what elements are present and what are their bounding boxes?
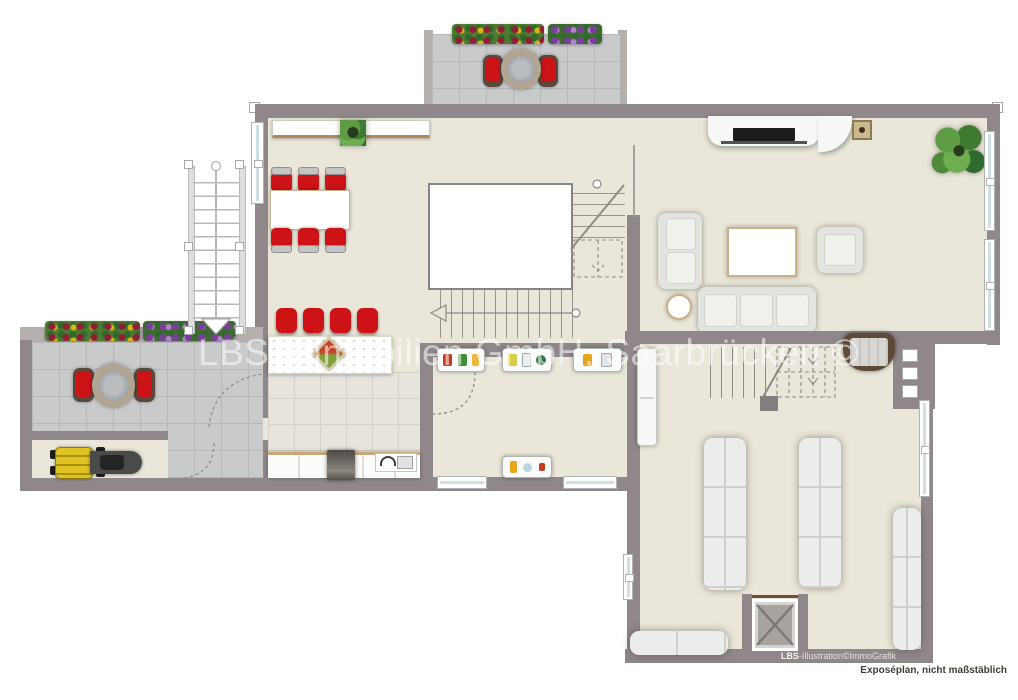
lawn-mower <box>55 447 93 479</box>
wall-unit-knob <box>859 127 865 133</box>
shaft-wall <box>742 594 752 652</box>
stairwell-void <box>428 183 573 290</box>
window <box>251 122 264 204</box>
shaft-wall <box>798 594 808 652</box>
wall-top <box>255 104 1000 118</box>
side-table <box>666 294 692 320</box>
stove <box>327 450 355 480</box>
lounger-bench <box>893 508 921 650</box>
wall-niche <box>902 349 918 362</box>
lounger-bench <box>630 631 728 655</box>
dining-chair <box>271 228 292 248</box>
lounger-bench <box>799 438 841 588</box>
dining-chair <box>271 172 292 192</box>
wall-terrace-left <box>20 340 32 491</box>
floor-plan: LBS Immobilien GmbH, Saarbrücken © LBS-I… <box>0 0 1018 700</box>
stair-landing-block <box>760 396 778 411</box>
wall-terrace-bottom <box>20 478 268 491</box>
balcony-bistro-table <box>501 49 541 89</box>
flower-box <box>548 24 602 44</box>
window <box>919 400 930 497</box>
sink <box>375 453 417 472</box>
illustration-credit: LBS-Illustration©ImmoGrafik <box>768 651 896 661</box>
window <box>623 554 633 600</box>
dining-chair <box>325 228 346 248</box>
armchair <box>817 227 863 273</box>
wall-niche <box>902 385 918 398</box>
bar-stool <box>330 308 351 333</box>
terrace-table <box>92 364 135 407</box>
bar-stool <box>303 308 324 333</box>
flower-box <box>45 321 140 341</box>
sofa-3seat <box>698 287 816 333</box>
balcony-chair <box>538 55 558 87</box>
window <box>984 131 995 231</box>
tv <box>733 128 795 141</box>
wall-shed-top <box>28 431 168 440</box>
mower-seat <box>100 455 124 470</box>
wall-niche <box>902 367 918 380</box>
balcony-chair <box>483 55 503 87</box>
bar-stool <box>357 308 378 333</box>
sofa-2seat <box>658 213 702 289</box>
window <box>984 239 995 331</box>
lounger-bench <box>704 438 746 590</box>
terrace-chair <box>134 368 155 402</box>
elevator-shaft <box>755 602 795 648</box>
potted-plant <box>340 120 366 146</box>
shaft-door <box>752 595 798 598</box>
flower-box <box>452 24 544 44</box>
coffee-table <box>727 227 797 277</box>
dining-chair <box>298 172 319 192</box>
bar-stool <box>276 308 297 333</box>
window <box>563 476 617 489</box>
terrace-chair <box>73 368 94 402</box>
disclaimer: Exposéplan, nicht maßstäblich <box>807 665 1007 676</box>
window <box>437 476 487 489</box>
staircase-right-run <box>573 183 625 247</box>
pantry-food-shelf <box>502 456 552 478</box>
dining-chair <box>298 228 319 248</box>
dining-table <box>270 190 350 230</box>
watermark: LBS Immobilien GmbH, Saarbrücken © <box>198 332 859 374</box>
kitchen-tiles <box>268 372 420 452</box>
staircase-lower-run <box>430 290 578 338</box>
wall-opening-edge <box>633 145 635 217</box>
external-staircase <box>184 160 248 338</box>
potted-plant <box>931 122 987 182</box>
dining-chair <box>325 172 346 192</box>
